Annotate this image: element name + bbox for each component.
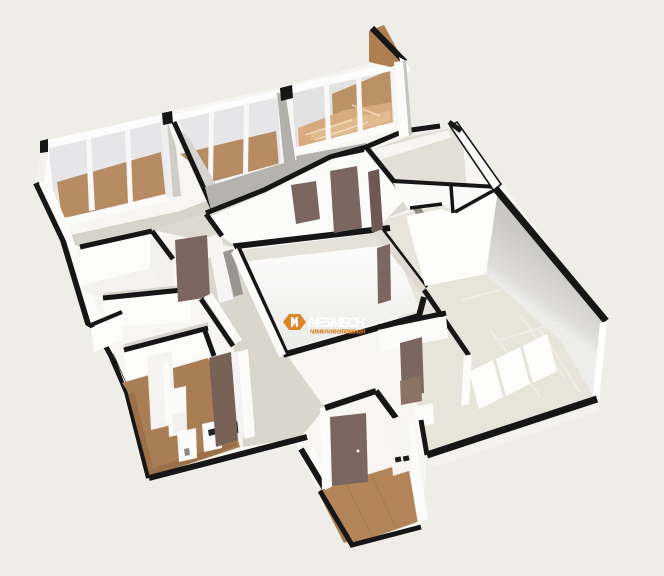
svg-text:NESMECH: NESMECH <box>308 315 365 330</box>
svg-text:NESMA UPVC PENCERE SISTEMLERI: NESMA UPVC PENCERE SISTEMLERI <box>310 330 365 336</box>
